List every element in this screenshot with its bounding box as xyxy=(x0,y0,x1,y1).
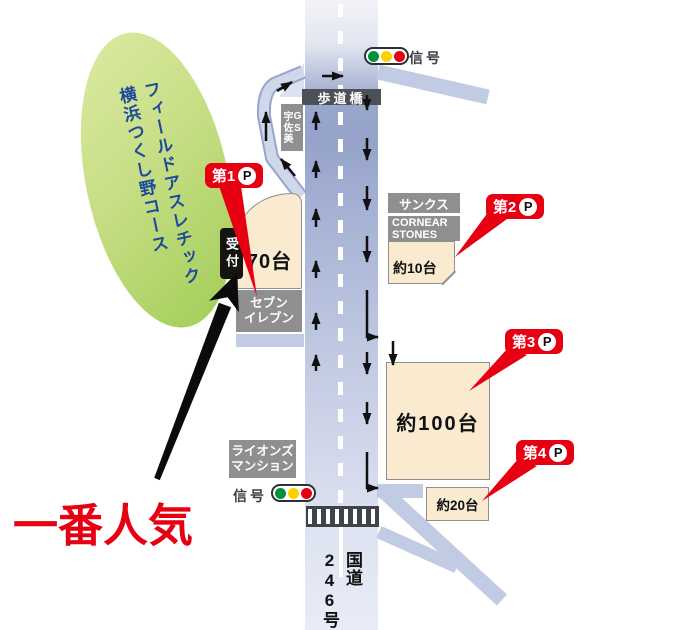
parking1-badge: 第1 P xyxy=(205,163,263,188)
turn-right-arrow-p4 xyxy=(367,452,378,488)
big-arrow-shaft xyxy=(154,303,231,480)
parking3-badge-label: 第3 xyxy=(512,331,535,352)
parking2-badge-label: 第2 xyxy=(493,196,516,217)
signal-label-top: 信号 xyxy=(409,48,443,68)
most-popular-label: 一番人気 xyxy=(13,489,193,554)
signal-yellow-light-icon xyxy=(381,51,392,62)
route-246-line1: 国道 xyxy=(341,551,364,629)
signal-red-light-icon xyxy=(394,51,405,62)
parking1-pointer xyxy=(219,186,257,297)
signal-label-bottom: 信号 xyxy=(233,486,267,506)
turn-right-arrow-p3 xyxy=(367,290,378,337)
route-246-sign: 国道 246号 xyxy=(318,551,364,629)
signal-green-light-icon xyxy=(275,488,286,499)
parking2-badge: 第2 P xyxy=(486,194,544,219)
parking4-badge-label: 第4 xyxy=(523,442,546,463)
parking-p-icon: P xyxy=(519,198,537,216)
parking4-pointer xyxy=(482,459,537,501)
rejoin-arrow xyxy=(277,82,292,91)
parking3-pointer xyxy=(469,348,527,391)
signal-yellow-light-icon xyxy=(288,488,299,499)
traffic-signal-icon-bottom xyxy=(271,484,316,502)
badge-pointer-beams xyxy=(219,186,537,501)
parking3-badge: 第3 P xyxy=(505,329,563,354)
most-popular-arrow xyxy=(154,273,239,480)
parking-p-icon: P xyxy=(238,167,256,185)
parking-p-icon: P xyxy=(549,444,567,462)
traffic-flow-arrows xyxy=(266,76,393,488)
lot1-exit-arrow xyxy=(281,159,295,176)
parking4-badge: 第4 P xyxy=(516,440,574,465)
signal-green-light-icon xyxy=(368,51,379,62)
parking-p-icon: P xyxy=(538,333,556,351)
signal-red-light-icon xyxy=(301,488,312,499)
parking1-badge-label: 第1 xyxy=(212,165,235,186)
access-map: フィールドアスレチック 横浜つくし野コース 歩道橋 GS 宇佐美 サンクス CO… xyxy=(0,0,696,630)
traffic-signal-icon-top xyxy=(364,47,409,65)
route-246-line2: 246号 xyxy=(318,551,341,629)
